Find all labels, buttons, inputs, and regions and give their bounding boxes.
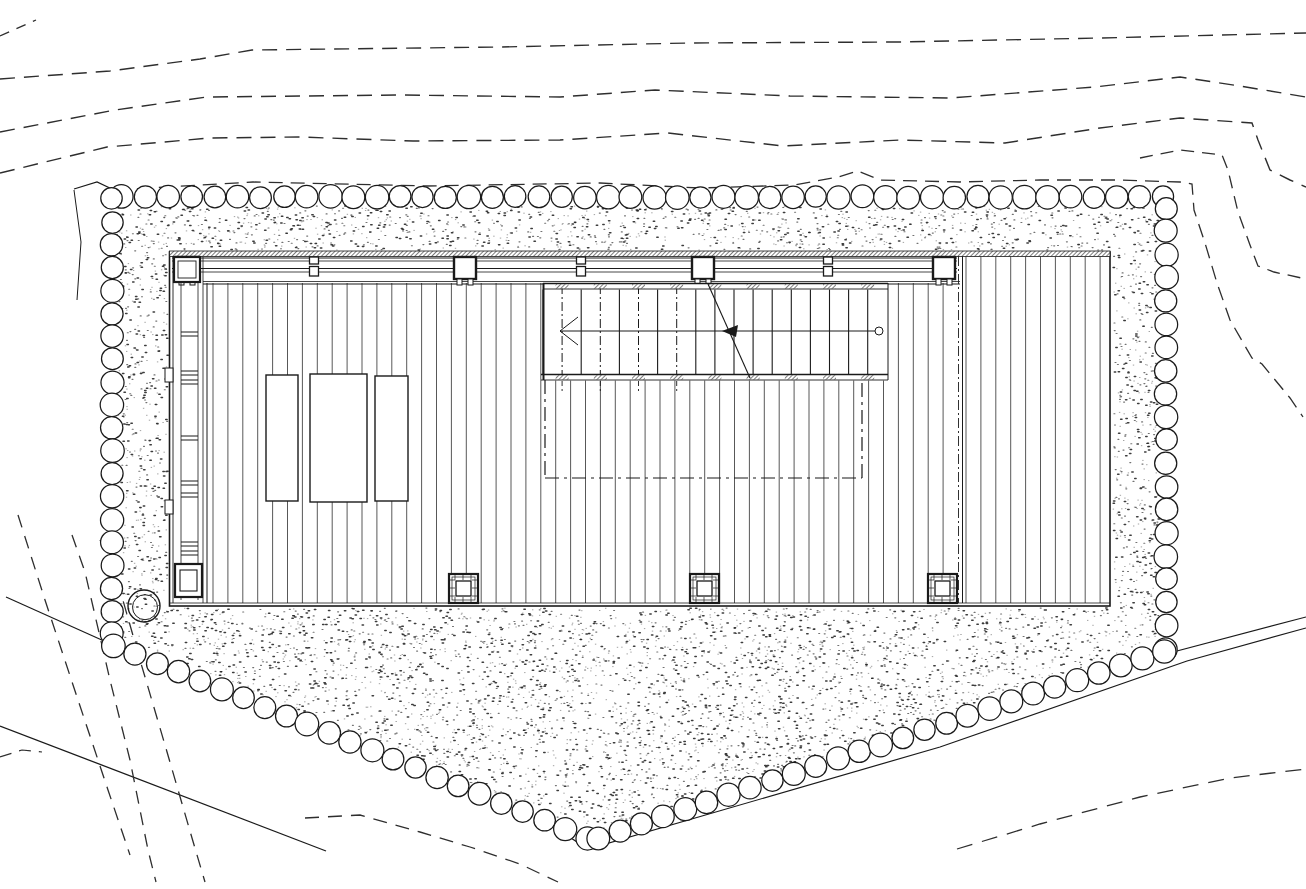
deck-rectangles xyxy=(266,374,408,502)
column-base-plate xyxy=(928,574,957,603)
column-small xyxy=(310,257,319,276)
stones-left xyxy=(100,188,124,645)
site-line-lower-left xyxy=(0,726,326,851)
stones-right xyxy=(1154,198,1178,661)
contour-top-corner xyxy=(0,20,36,36)
stones-bottom-right xyxy=(587,640,1176,850)
column-small xyxy=(577,257,586,276)
contour-left-stub xyxy=(0,750,42,757)
site-plan-drawing xyxy=(0,0,1306,889)
column-base-plate xyxy=(449,574,478,603)
site-line-upper-left xyxy=(6,597,104,641)
contour-bottom-right xyxy=(957,769,1306,849)
site-line-far-right xyxy=(1158,617,1306,656)
contour-bottom-arc xyxy=(305,815,558,882)
deck-rectangle xyxy=(310,374,367,502)
deck-rectangle xyxy=(375,376,408,501)
stair xyxy=(541,283,888,391)
stones-bottom-left xyxy=(102,634,599,850)
column-base-plate xyxy=(690,574,719,603)
column-small xyxy=(824,257,833,276)
gravel-corner-descender xyxy=(74,190,81,300)
drawing-canvas xyxy=(0,0,1306,889)
contour-2 xyxy=(0,77,1306,132)
contour-1 xyxy=(0,33,1306,79)
contour-3 xyxy=(0,118,1306,187)
deck-rectangle xyxy=(266,375,298,501)
stones-top xyxy=(110,185,1174,210)
